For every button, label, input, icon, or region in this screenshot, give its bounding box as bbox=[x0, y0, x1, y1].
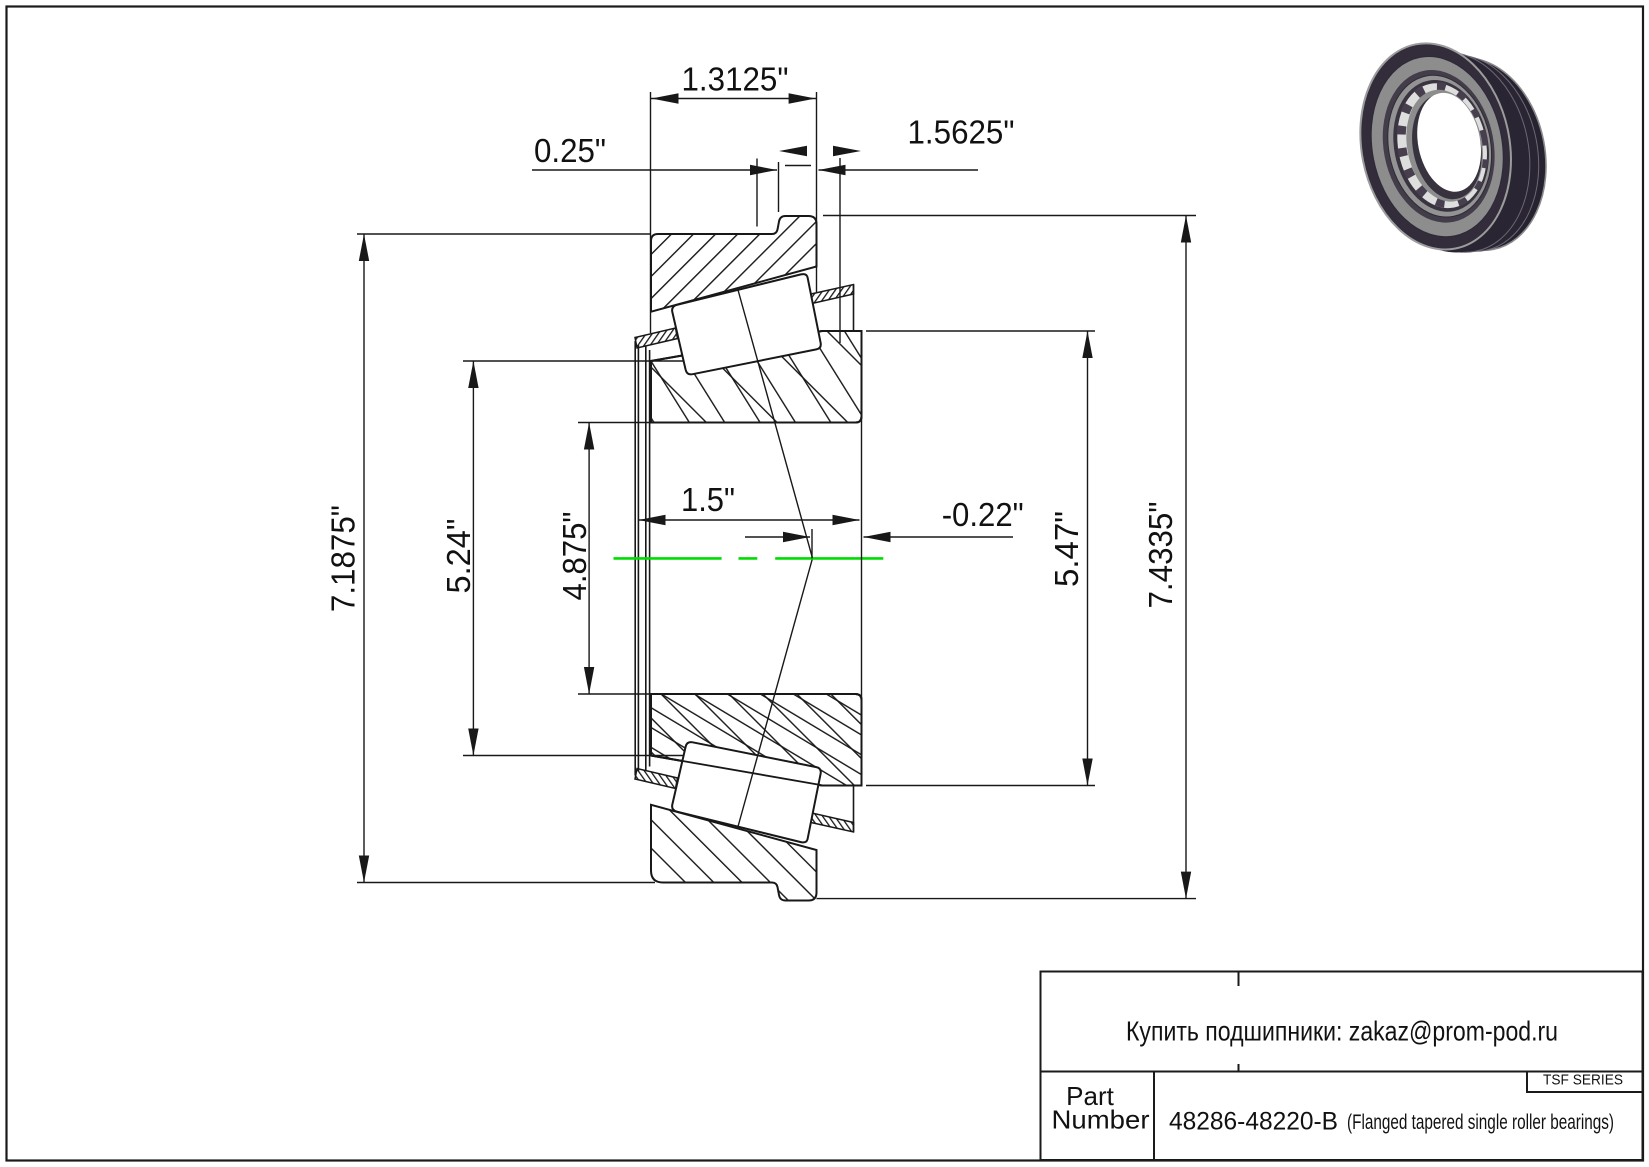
svg-text:Купить подшипники: zakaz@prom-: Купить подшипники: zakaz@prom-pod.ru bbox=[1126, 1016, 1558, 1047]
svg-text:1.5625": 1.5625" bbox=[908, 115, 1015, 152]
svg-text:4.875": 4.875" bbox=[557, 512, 594, 601]
svg-text:7.1875": 7.1875" bbox=[325, 505, 362, 612]
svg-text:1.5": 1.5" bbox=[681, 482, 735, 519]
svg-text:-0.22": -0.22" bbox=[942, 497, 1024, 534]
svg-text:7.4335": 7.4335" bbox=[1143, 502, 1180, 609]
svg-text:TSF SERIES: TSF SERIES bbox=[1543, 1073, 1623, 1089]
svg-text:48286-48220-B: 48286-48220-B bbox=[1169, 1107, 1338, 1135]
svg-text:1.3125": 1.3125" bbox=[682, 62, 789, 99]
svg-text:0.25": 0.25" bbox=[534, 133, 606, 170]
svg-text:Number: Number bbox=[1052, 1105, 1150, 1135]
svg-text:5.24": 5.24" bbox=[441, 519, 478, 594]
svg-text:(Flanged tapered single roller: (Flanged tapered single roller bearings) bbox=[1347, 1111, 1614, 1134]
svg-text:5.47": 5.47" bbox=[1049, 511, 1086, 587]
